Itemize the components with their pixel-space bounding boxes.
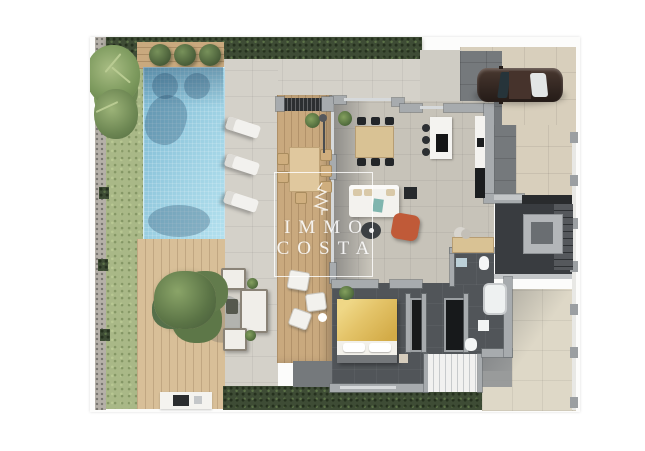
bar-stool xyxy=(422,136,430,144)
outdoor-shower xyxy=(323,117,325,153)
terrace-plant xyxy=(305,113,320,128)
bar-stool xyxy=(422,148,430,156)
garden-armchair xyxy=(221,268,246,290)
dining-chair xyxy=(357,117,366,125)
throw-blanket xyxy=(372,198,384,212)
pergola-slats xyxy=(283,98,323,111)
hall-wall xyxy=(422,294,426,352)
floorplan-render-page: IMMO COSTA xyxy=(0,0,645,451)
elevator-cab xyxy=(531,222,553,244)
deck-chair xyxy=(305,292,327,313)
dining-chair xyxy=(371,158,380,166)
watermark-line1: IMMO xyxy=(250,217,396,238)
bedroom-plant xyxy=(339,286,354,300)
wall-pillar xyxy=(570,397,578,408)
desk xyxy=(452,237,494,253)
dining-chair xyxy=(371,117,380,125)
tree-shadow-on-pool xyxy=(148,205,210,237)
palm-tree xyxy=(94,89,138,139)
bed-blanket xyxy=(337,299,397,341)
cooktop xyxy=(436,134,448,152)
entry-lintel xyxy=(522,195,572,204)
bbq-grill xyxy=(173,395,189,406)
round-bush xyxy=(149,44,171,66)
wall-pillar xyxy=(570,347,578,358)
desk-chair xyxy=(461,229,471,239)
dark-tile-path xyxy=(494,125,516,203)
dining-chair xyxy=(385,158,394,166)
wall-divider xyxy=(390,280,422,288)
paving-patch xyxy=(420,50,462,107)
oven xyxy=(477,138,484,147)
sofa-cushion xyxy=(386,189,395,196)
round-bush xyxy=(174,44,196,66)
indoor-plant xyxy=(338,111,352,126)
fern xyxy=(100,329,110,341)
fern xyxy=(99,187,109,199)
stair-wall xyxy=(478,354,482,392)
outdoor-shower-head xyxy=(319,114,327,122)
entry-path xyxy=(516,125,576,201)
bathtub xyxy=(483,283,507,315)
wall-east xyxy=(484,104,494,198)
round-bush xyxy=(199,44,221,66)
window xyxy=(340,386,396,389)
garden-plant xyxy=(245,330,256,341)
washbasin xyxy=(456,258,467,267)
watermark-tree-icon xyxy=(313,182,331,216)
toilet xyxy=(465,338,477,351)
toilet xyxy=(479,256,489,270)
watermark: IMMO COSTA xyxy=(250,217,396,259)
dining-chair xyxy=(357,158,366,166)
car-mirror xyxy=(499,101,503,104)
outdoor-chair xyxy=(320,149,332,161)
villa-top-view-render: IMMO COSTA xyxy=(90,37,580,412)
wall-pillar xyxy=(570,175,578,186)
bush-shadow-on-pool xyxy=(184,73,210,99)
garden-armchair xyxy=(223,328,247,351)
car-mirror xyxy=(499,66,503,69)
fern xyxy=(98,259,108,271)
wall-pillar xyxy=(570,132,578,143)
dark-paving-sw xyxy=(293,361,332,387)
wall xyxy=(444,104,484,112)
pillow xyxy=(343,343,365,352)
wall-divider xyxy=(332,280,378,288)
bbq-sink xyxy=(194,396,202,404)
tall-cabinet xyxy=(475,168,485,198)
outdoor-chair xyxy=(277,153,289,165)
car-roof xyxy=(509,71,531,99)
headboard xyxy=(337,355,397,363)
pillow xyxy=(369,343,391,352)
wc-wall xyxy=(450,248,454,286)
window xyxy=(344,98,394,101)
deck-side-table xyxy=(318,313,327,322)
car xyxy=(477,68,563,102)
side-table xyxy=(404,187,417,199)
garden-sofa xyxy=(240,289,268,333)
pergola-post xyxy=(276,97,284,111)
dining-chair xyxy=(385,117,394,125)
bar-stool xyxy=(422,124,430,132)
garden-plant xyxy=(247,278,258,289)
exterior-stairs xyxy=(428,354,478,392)
watermark-line2: COSTA xyxy=(250,238,396,259)
nightstand xyxy=(399,354,408,363)
washbasin xyxy=(478,320,489,331)
car-rear-window xyxy=(530,73,549,97)
wall-pillar xyxy=(570,304,578,315)
garden-tree xyxy=(154,271,216,329)
double-bed xyxy=(337,299,397,363)
garden-side-table xyxy=(226,299,238,314)
pergola-post xyxy=(322,97,333,111)
window xyxy=(420,106,446,109)
wall xyxy=(400,104,422,112)
indoor-dining-table xyxy=(355,126,394,158)
